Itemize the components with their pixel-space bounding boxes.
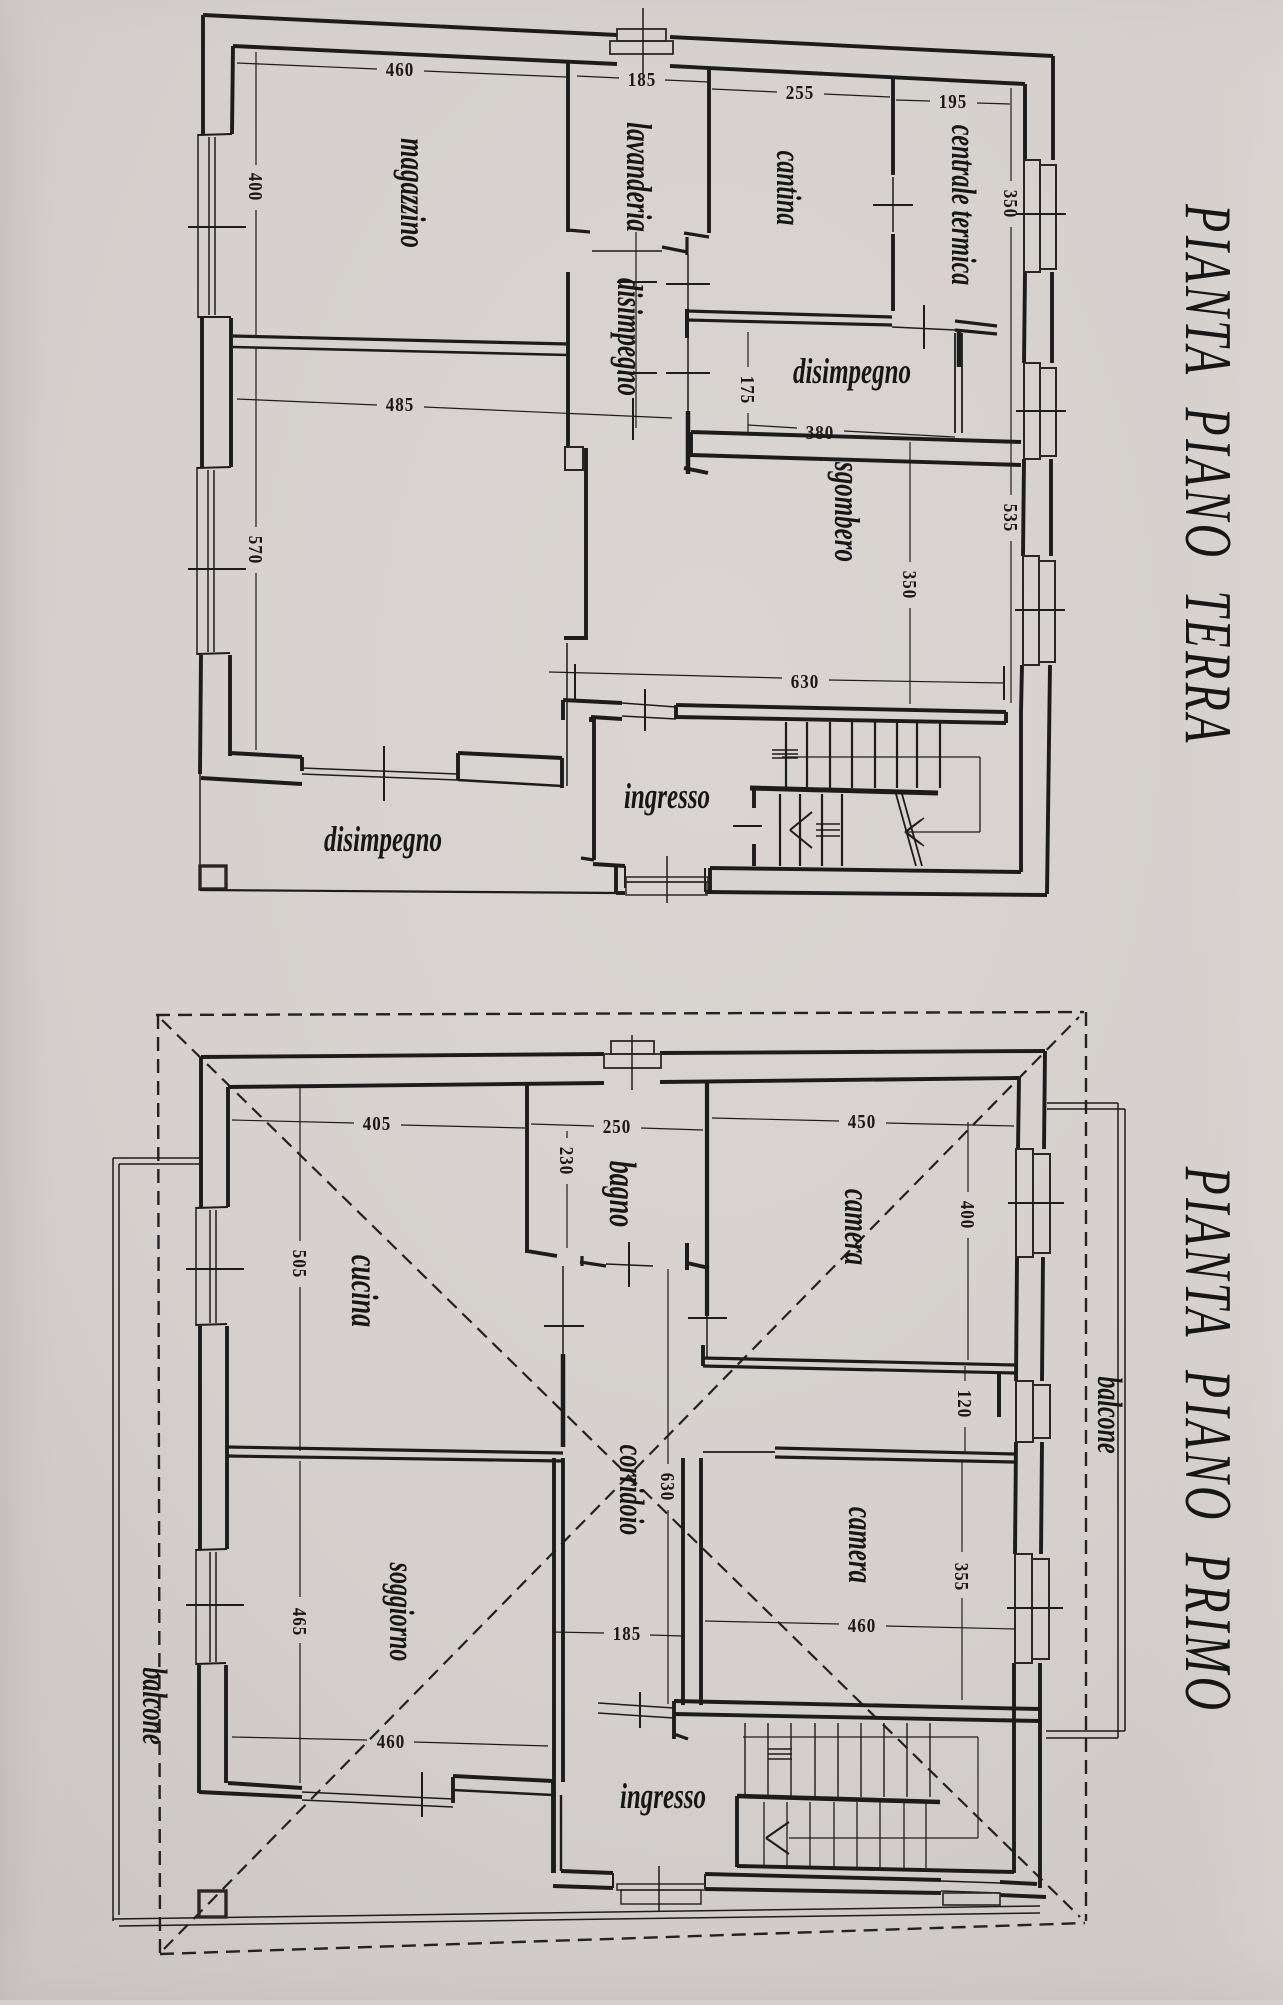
svg-text:balcone: balcone: [1090, 1376, 1128, 1453]
svg-text:380: 380: [806, 422, 834, 445]
svg-text:camera: camera: [837, 1189, 878, 1265]
svg-text:505: 505: [288, 1250, 311, 1278]
svg-text:cucina: cucina: [343, 1255, 385, 1327]
svg-text:460: 460: [377, 1731, 405, 1754]
svg-text:630: 630: [791, 671, 819, 694]
svg-text:centrale termica: centrale termica: [944, 125, 982, 286]
svg-text:PIANTA PIANO TERRA: PIANTA PIANO TERRA: [1171, 203, 1244, 746]
svg-text:350: 350: [898, 571, 921, 599]
svg-text:195: 195: [939, 91, 967, 114]
svg-text:PIANTA PIANO PRIMO: PIANTA PIANO PRIMO: [1171, 1166, 1244, 1714]
svg-text:bagno: bagno: [601, 1161, 643, 1227]
svg-text:355: 355: [950, 1563, 973, 1591]
svg-text:250: 250: [603, 1116, 631, 1139]
svg-text:soggiorno: soggiorno: [382, 1562, 420, 1661]
svg-text:ingresso: ingresso: [620, 1775, 706, 1816]
svg-text:450: 450: [848, 1111, 876, 1134]
svg-text:corridoio: corridoio: [612, 1445, 650, 1536]
svg-text:405: 405: [363, 1113, 391, 1136]
svg-text:sgombero: sgombero: [827, 461, 868, 562]
svg-text:magazzino: magazzino: [393, 138, 434, 248]
svg-text:400: 400: [244, 173, 267, 201]
svg-text:balcone: balcone: [135, 1667, 173, 1744]
svg-text:185: 185: [628, 69, 656, 92]
svg-text:255: 255: [786, 82, 814, 105]
svg-text:camera: camera: [841, 1507, 882, 1583]
svg-text:460: 460: [386, 59, 414, 82]
svg-text:120: 120: [953, 1390, 976, 1418]
svg-text:400: 400: [956, 1201, 979, 1229]
svg-text:630: 630: [656, 1473, 679, 1501]
svg-text:230: 230: [555, 1147, 578, 1175]
svg-text:lavanderia: lavanderia: [619, 122, 660, 232]
svg-text:disimpegno: disimpegno: [324, 818, 442, 859]
svg-text:570: 570: [244, 536, 267, 564]
svg-text:disimpegno: disimpegno: [793, 350, 911, 391]
svg-text:350: 350: [999, 190, 1022, 218]
svg-text:ingresso: ingresso: [624, 775, 710, 816]
svg-text:175: 175: [736, 376, 759, 404]
svg-text:disimpegno: disimpegno: [610, 278, 651, 396]
svg-text:485: 485: [386, 394, 414, 417]
svg-text:460: 460: [848, 1615, 876, 1638]
svg-text:cantina: cantina: [769, 151, 807, 226]
svg-text:185: 185: [613, 1623, 641, 1646]
svg-text:535: 535: [999, 504, 1022, 532]
svg-text:465: 465: [288, 1608, 311, 1636]
